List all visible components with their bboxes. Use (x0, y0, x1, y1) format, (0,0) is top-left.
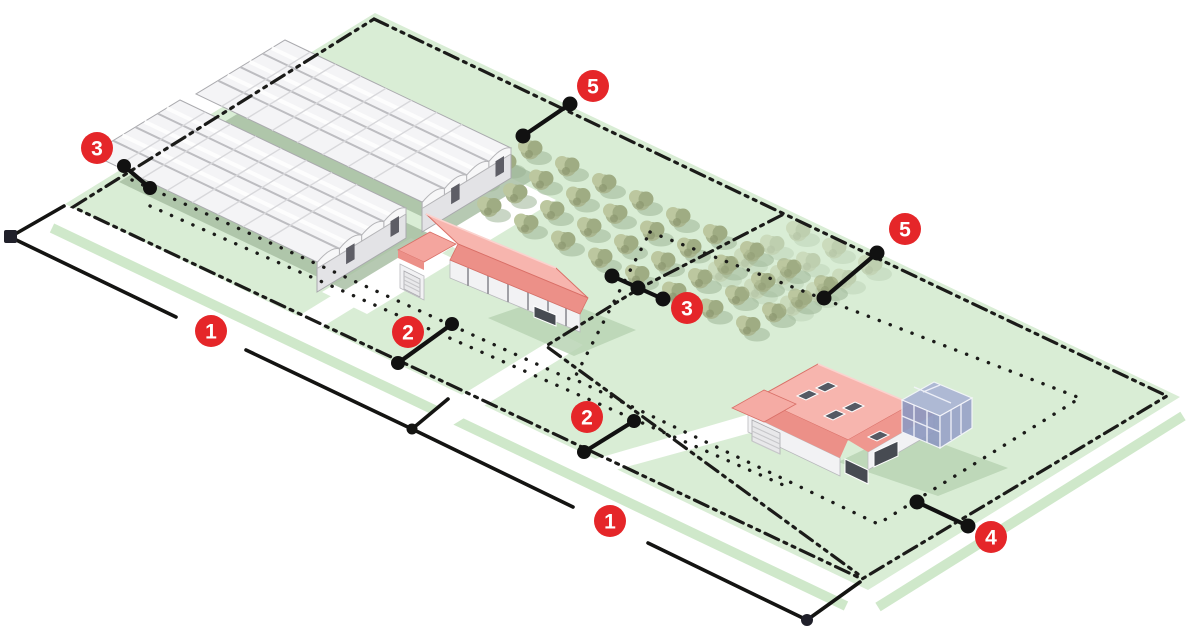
svg-text:4: 4 (985, 527, 997, 550)
marker-3-middle: 3 (671, 292, 703, 324)
svg-text:1: 1 (604, 511, 616, 534)
svg-text:3: 3 (681, 298, 693, 321)
marker-4-right: 4 (975, 521, 1007, 553)
marker-3-left: 3 (81, 132, 113, 164)
site-plan-diagram: 3 5 5 1 2 3 2 1 4 (0, 0, 1200, 635)
svg-text:3: 3 (91, 138, 103, 161)
marker-2-left: 2 (392, 316, 424, 348)
marker-1-lower: 1 (594, 505, 626, 537)
svg-text:5: 5 (587, 76, 599, 99)
svg-text:1: 1 (205, 321, 217, 344)
marker-2-middle: 2 (571, 401, 603, 433)
svg-text:2: 2 (581, 407, 593, 430)
svg-text:2: 2 (402, 322, 414, 345)
marker-1-upper: 1 (195, 315, 227, 347)
road-junction-dot (407, 424, 418, 435)
marker-5-right: 5 (889, 213, 921, 245)
marker-5-top: 5 (577, 70, 609, 102)
svg-text:5: 5 (899, 219, 911, 242)
road-end-cap (4, 230, 17, 243)
road-end-dot (801, 614, 813, 626)
